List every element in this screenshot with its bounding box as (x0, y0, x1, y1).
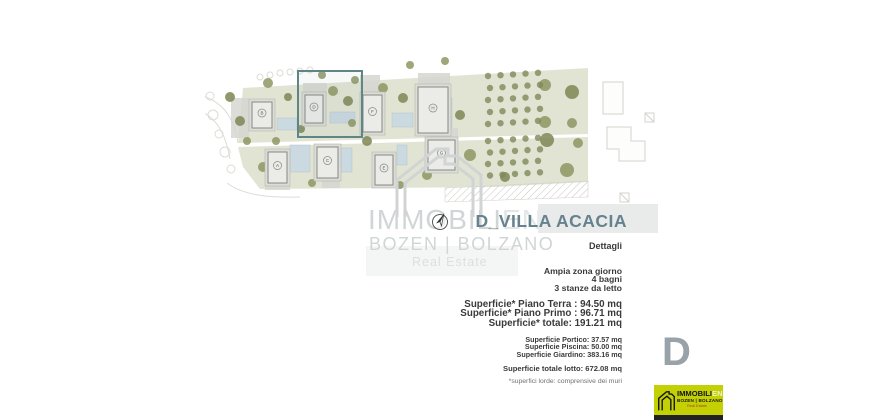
secondary-surface-list: Superficie Portico: 37.57 mq Superficie … (460, 336, 622, 359)
listing-page: IMMOBILIEN BOZEN | BOLZANO Real Estate (0, 0, 870, 420)
plan-building-a: A (265, 149, 290, 186)
logo-brand: IMMOBILIEN (677, 390, 721, 398)
building-label-h: H (431, 106, 434, 111)
plan-building-f: F (360, 92, 385, 135)
logo-tagline: Real Estate (677, 404, 717, 409)
building-label-f: F (371, 109, 374, 114)
surface-footnote: *superfici lorde: comprensive dei muri (460, 378, 622, 385)
plan-building-e: E (372, 152, 396, 188)
feature-list: Ampia zona giorno 4 bagni 3 stanze da le… (460, 267, 622, 292)
highlight-box-unit-d (298, 71, 362, 137)
total-lot-surface: Superficie totale lotto: 672.08 mq (460, 364, 622, 373)
plan-building-h: H (415, 84, 451, 136)
page-title: D_VILLA ACACIA (475, 211, 627, 232)
logo-brand-suffix: EN (712, 389, 723, 398)
logo-brand-main: IMMOBILI (677, 389, 712, 398)
surface-item: Superficie Giardino: 383.16 mq (460, 351, 622, 359)
compass-icon (430, 211, 451, 232)
main-surface-list: Superficie* Piano Terra : 94.50 mq Super… (460, 300, 622, 329)
building-label-b: B (260, 111, 263, 116)
plan-building-b: B (249, 99, 275, 131)
neighbor-outlines (603, 82, 654, 202)
site-plan: BDFHACEG (205, 55, 665, 235)
surface-item: Superficie* totale: 191.21 mq (460, 319, 622, 329)
unit-letter: D (662, 330, 691, 375)
building-label-g: G (440, 151, 444, 156)
plan-building-c: C (314, 144, 341, 181)
details-panel: Dettagli Ampia zona giorno 4 bagni 3 sta… (460, 241, 622, 385)
building-label-a: A (276, 163, 279, 168)
agency-logo: IMMOBILIEN BOZEN | BOLZANO Real Estate (654, 385, 723, 415)
details-heading: Dettagli (460, 241, 622, 251)
logo-bottom-strip (654, 415, 723, 420)
building-label-e: E (382, 166, 385, 171)
feature-item: 3 stanze da letto (460, 284, 622, 292)
logo-house-icon (657, 389, 676, 412)
